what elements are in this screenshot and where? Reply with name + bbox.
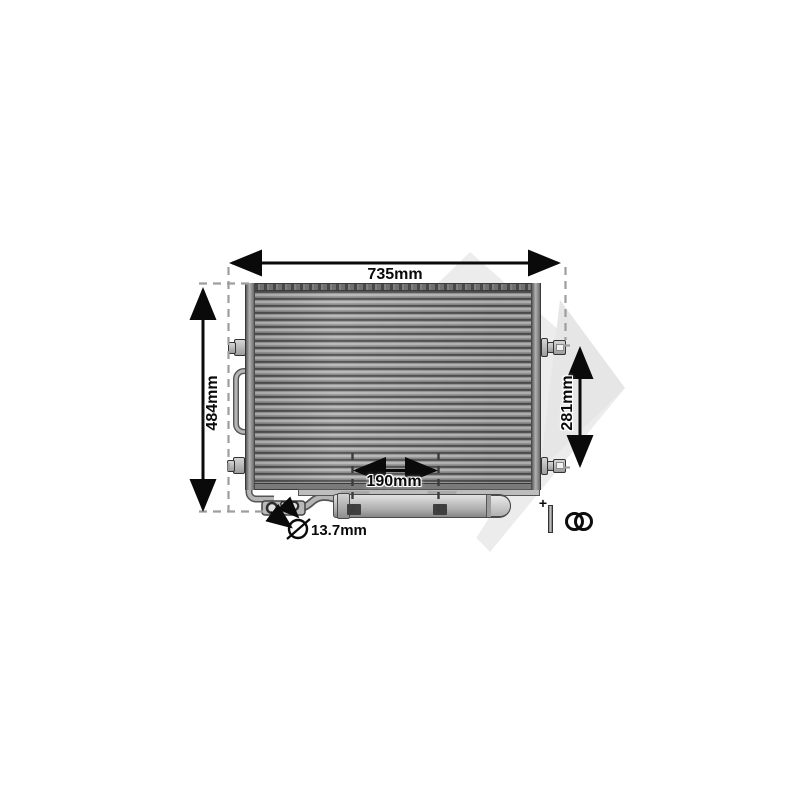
condenser-right-header xyxy=(531,283,541,490)
label-plus-sign: + xyxy=(536,495,550,511)
fitting-cap xyxy=(227,460,235,472)
fitting-port-opening xyxy=(556,462,564,469)
pipe-work xyxy=(0,0,800,800)
service-port-large xyxy=(267,503,277,513)
label-drier-span: 190mm xyxy=(344,473,444,491)
condenser-left-header xyxy=(245,283,255,490)
fitting-cap xyxy=(228,342,236,354)
drier-clamp-left xyxy=(347,504,361,515)
label-core-height: 281mm xyxy=(559,375,577,430)
technical-diagram: 735mm 484mm 281mm 190mm 13.7mm + xyxy=(0,0,800,800)
drier-clamp-right xyxy=(433,504,447,515)
service-port-stub xyxy=(281,502,285,506)
fitting-port-opening xyxy=(556,344,564,351)
label-overall-width: 735mm xyxy=(345,266,445,284)
service-port-small xyxy=(290,502,298,510)
label-port-diameter: 13.7mm xyxy=(311,522,367,539)
o-ring-right-icon xyxy=(574,512,593,531)
label-overall-height: 484mm xyxy=(204,375,222,430)
